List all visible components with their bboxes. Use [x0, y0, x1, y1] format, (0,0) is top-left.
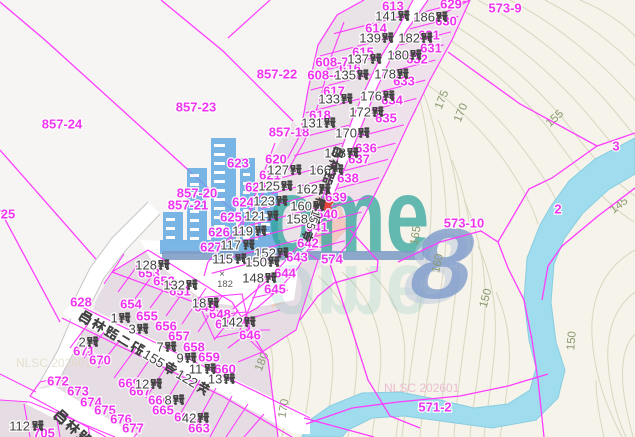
svg-text:644: 644 — [274, 266, 296, 281]
svg-text:132: 132 — [163, 278, 185, 293]
svg-text:2: 2 — [554, 202, 561, 217]
svg-text:186: 186 — [413, 10, 435, 25]
svg-text:3: 3 — [612, 139, 619, 154]
svg-text:162: 162 — [296, 182, 318, 197]
svg-text:623: 623 — [227, 156, 249, 171]
svg-text:117: 117 — [220, 238, 241, 253]
svg-text:123: 123 — [253, 194, 275, 209]
svg-text:13: 13 — [208, 372, 222, 387]
svg-text:119: 119 — [232, 224, 253, 239]
svg-text:857-22: 857-22 — [257, 67, 297, 82]
svg-text:141: 141 — [375, 9, 397, 24]
svg-text:125: 125 — [258, 179, 280, 194]
svg-text:857-24: 857-24 — [42, 117, 83, 132]
svg-text:115: 115 — [212, 252, 233, 267]
svg-text:574: 574 — [321, 252, 343, 267]
svg-text:672: 672 — [47, 374, 69, 389]
svg-text:150: 150 — [245, 255, 267, 270]
svg-text:135: 135 — [334, 68, 356, 83]
svg-text:3: 3 — [129, 322, 136, 337]
svg-text:112: 112 — [9, 419, 30, 434]
svg-text:180: 180 — [387, 48, 409, 63]
svg-text:624: 624 — [232, 195, 254, 210]
svg-text:176: 176 — [360, 89, 382, 104]
svg-text:629: 629 — [440, 0, 462, 12]
svg-text:8: 8 — [165, 393, 172, 408]
svg-text:677: 677 — [122, 421, 144, 436]
svg-text:9: 9 — [177, 351, 184, 366]
svg-text:166: 166 — [309, 163, 331, 178]
svg-text:182: 182 — [398, 31, 420, 46]
svg-text:646: 646 — [239, 328, 261, 343]
svg-text:127: 127 — [267, 163, 289, 178]
svg-text:139: 139 — [359, 31, 381, 46]
svg-text:1: 1 — [111, 311, 118, 326]
svg-text:148: 148 — [242, 271, 264, 286]
svg-text:857-21: 857-21 — [168, 198, 208, 213]
svg-text:182: 182 — [217, 279, 233, 290]
svg-text:121: 121 — [244, 209, 266, 224]
svg-text:2: 2 — [79, 335, 86, 350]
svg-text:142: 142 — [221, 315, 243, 330]
svg-text:42: 42 — [182, 411, 196, 426]
svg-text:12: 12 — [135, 377, 149, 392]
svg-text:645: 645 — [264, 282, 286, 297]
svg-text:573-10: 573-10 — [444, 216, 484, 231]
svg-text:137: 137 — [347, 52, 369, 67]
svg-text:170: 170 — [335, 126, 357, 141]
svg-text:NLSC 202601: NLSC 202601 — [384, 381, 460, 395]
svg-text:628: 628 — [70, 295, 92, 310]
svg-text:150: 150 — [565, 331, 579, 351]
svg-text:133: 133 — [318, 92, 340, 107]
svg-text:573-9: 573-9 — [488, 1, 521, 16]
svg-text:571-2: 571-2 — [418, 400, 451, 415]
svg-text:670: 670 — [89, 353, 111, 368]
svg-text:172: 172 — [349, 105, 371, 120]
svg-text:625: 625 — [220, 210, 242, 225]
svg-text:178: 178 — [374, 67, 396, 82]
svg-text:131: 131 — [301, 116, 323, 131]
svg-text:857-23: 857-23 — [176, 100, 216, 115]
svg-text:643: 643 — [286, 250, 308, 265]
svg-text:128: 128 — [135, 258, 157, 273]
svg-text:25: 25 — [1, 207, 15, 222]
svg-text:635: 635 — [375, 111, 397, 126]
svg-text:18: 18 — [192, 296, 206, 311]
